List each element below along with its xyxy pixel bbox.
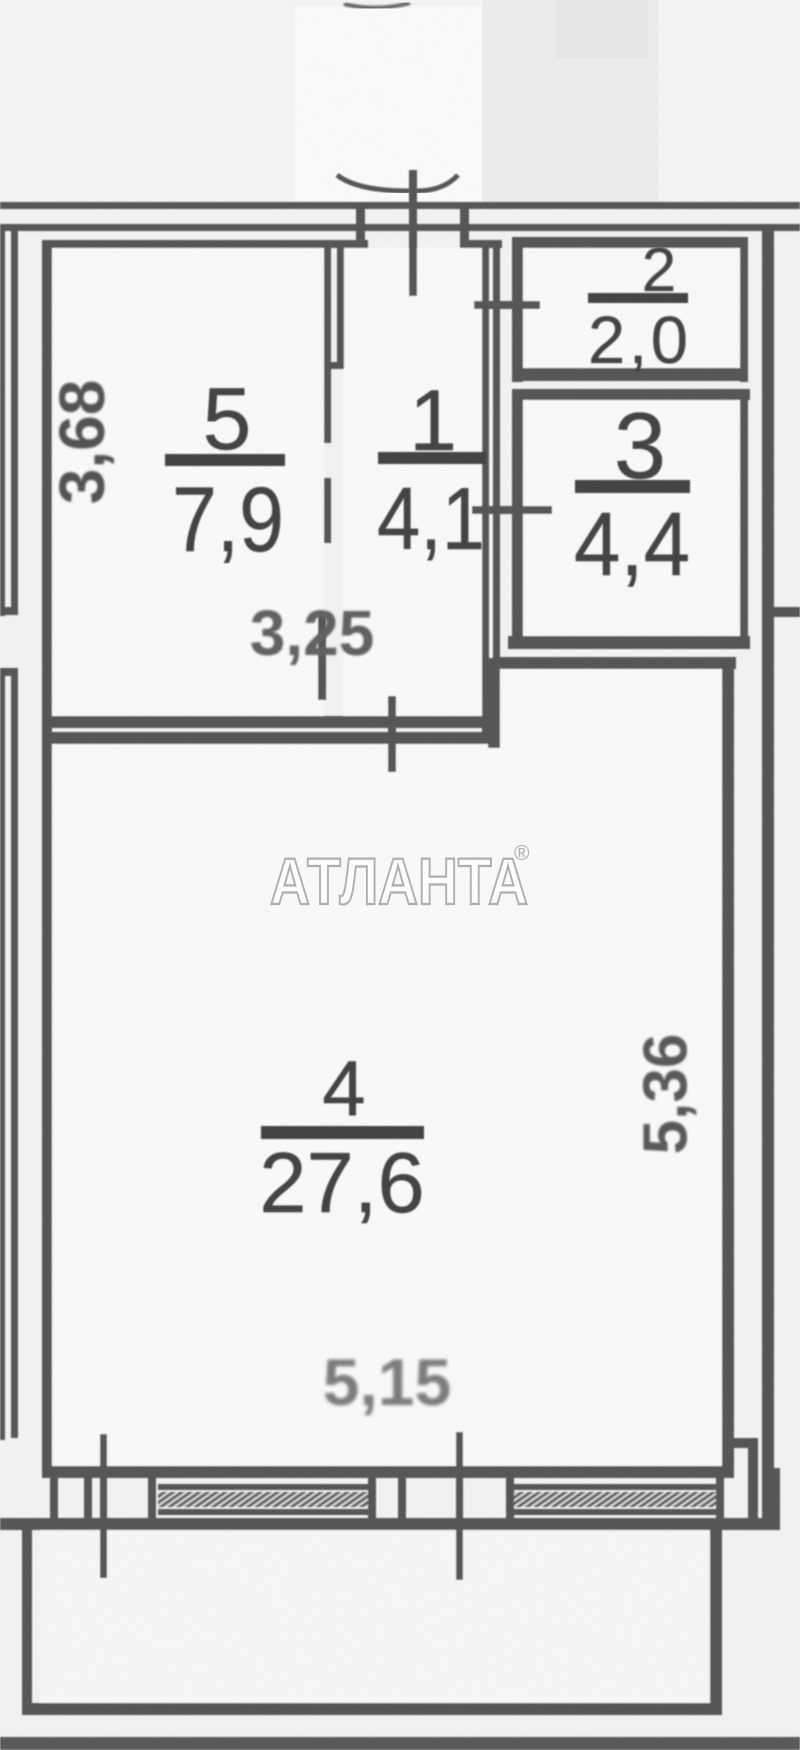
svg-text:3,25: 3,25	[250, 597, 375, 669]
svg-text:2,0: 2,0	[588, 303, 688, 378]
svg-text:4: 4	[322, 1044, 365, 1132]
svg-text:5: 5	[203, 369, 252, 468]
svg-text:4,1: 4,1	[377, 469, 485, 568]
svg-text:5,36: 5,36	[631, 1034, 700, 1155]
svg-text:7,9: 7,9	[172, 469, 284, 571]
svg-text:4,4: 4,4	[574, 495, 690, 595]
svg-text:5,15: 5,15	[323, 1345, 451, 1419]
svg-text:27,6: 27,6	[259, 1136, 424, 1231]
svg-text:®: ®	[514, 842, 530, 865]
svg-text:3,68: 3,68	[46, 380, 118, 505]
svg-text:АТЛАНТА: АТЛАНТА	[270, 844, 528, 918]
